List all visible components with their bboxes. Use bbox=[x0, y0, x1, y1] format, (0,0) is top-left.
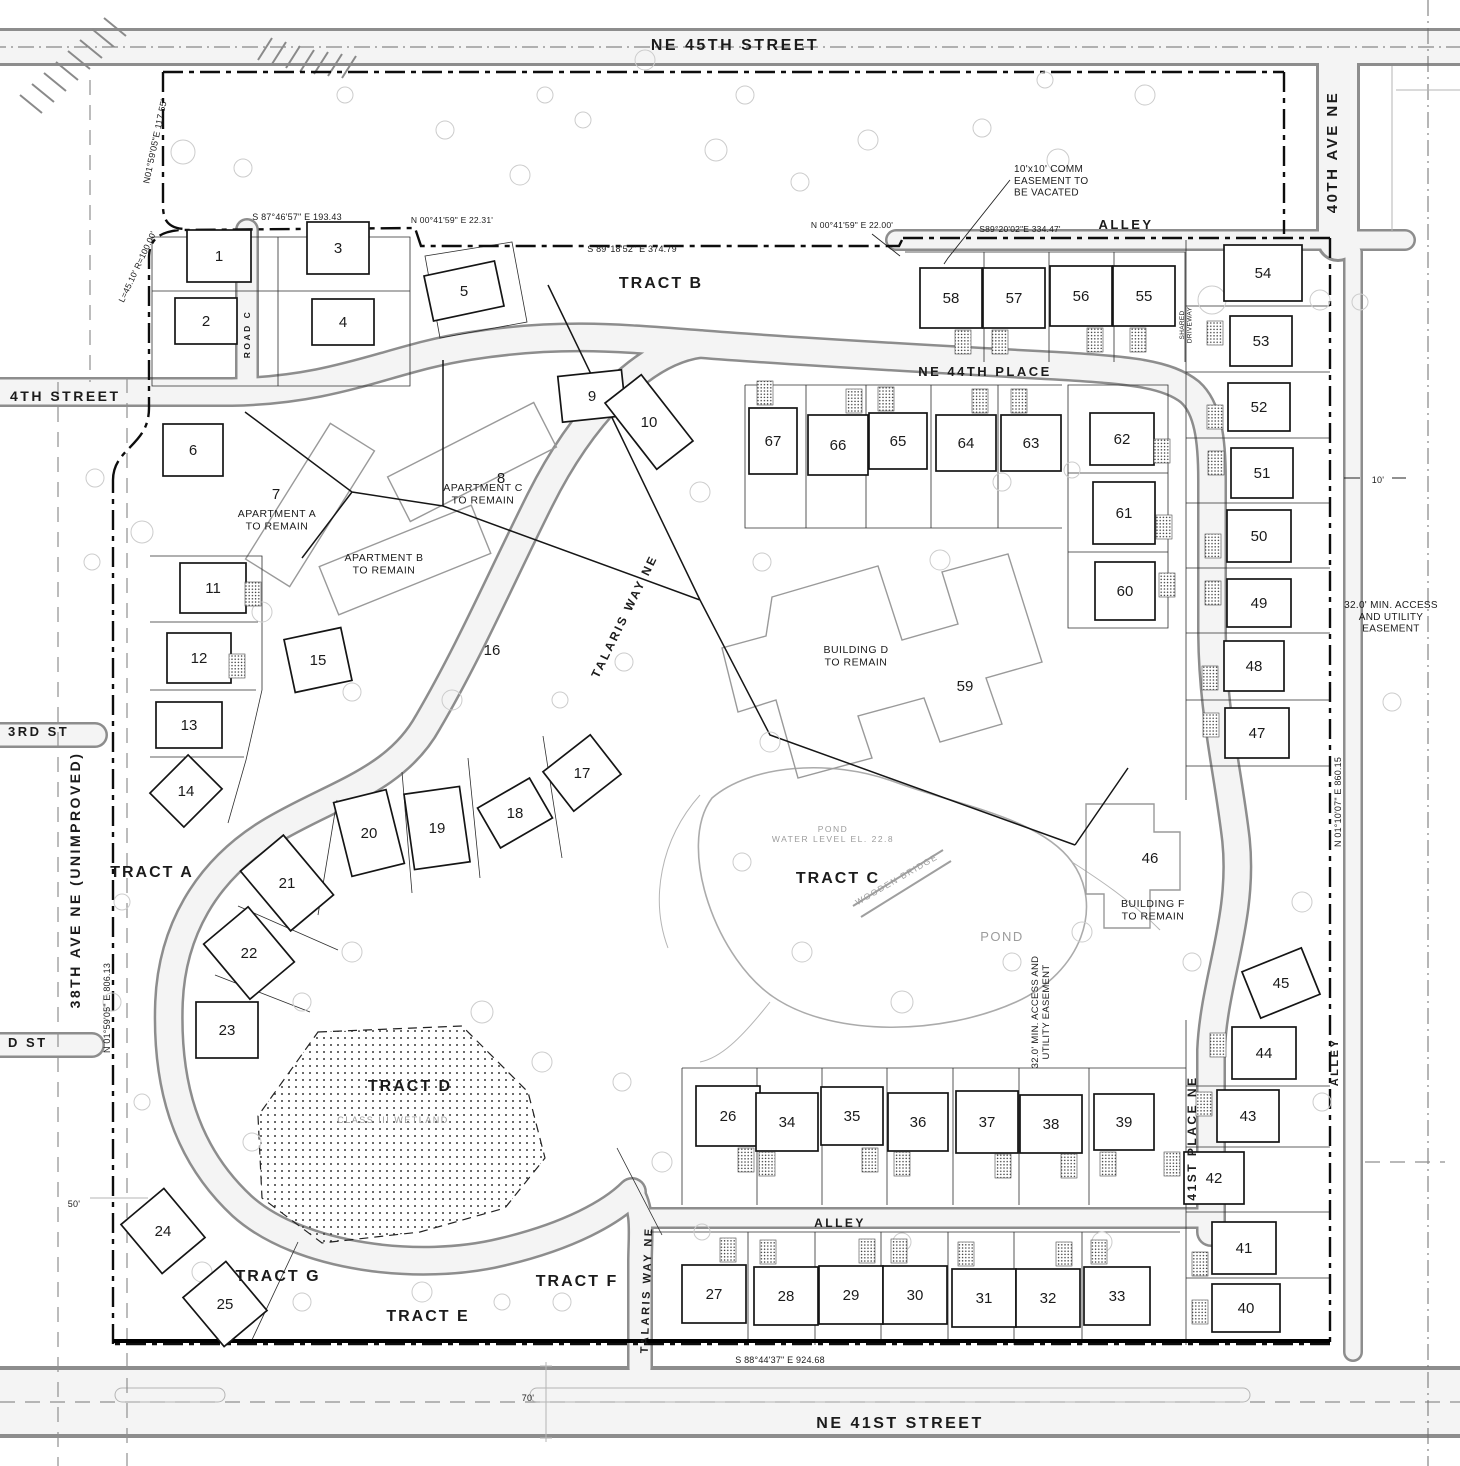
lot-number: 50 bbox=[1251, 528, 1268, 545]
lot-number: 22 bbox=[241, 945, 258, 962]
driveway-pad bbox=[1210, 1033, 1226, 1057]
lot-number: 56 bbox=[1073, 288, 1090, 305]
tract-label: TRACT G bbox=[235, 1268, 320, 1285]
bearing-annotation: N 01°59'05" E 806.13 bbox=[102, 963, 112, 1053]
site-plan-drawing: 1234567891011121314151617181920212223242… bbox=[0, 0, 1460, 1466]
driveway-pad bbox=[859, 1239, 875, 1263]
lot-number: 39 bbox=[1116, 1114, 1133, 1131]
lot-number: 18 bbox=[507, 805, 524, 822]
driveway-pad bbox=[1091, 1240, 1107, 1264]
lot-number: 55 bbox=[1136, 288, 1153, 305]
bearing-annotation: N 01°10'07" E 860.15 bbox=[1333, 757, 1343, 847]
driveway-pad bbox=[1208, 451, 1224, 475]
dimension-label: 50' bbox=[68, 1199, 81, 1209]
lot-number: 53 bbox=[1253, 333, 1270, 350]
street-label: 40TH AVE NE bbox=[1324, 91, 1341, 214]
lot-number: 30 bbox=[907, 1287, 924, 1304]
lot-number: 37 bbox=[979, 1114, 996, 1131]
lot-number: 16 bbox=[484, 642, 501, 659]
building-label: BUILDING FTO REMAIN bbox=[1121, 898, 1185, 922]
driveway-pad bbox=[955, 330, 971, 354]
lot-23: 23 bbox=[196, 1002, 258, 1058]
tract-label: TRACT B bbox=[619, 275, 703, 292]
annotation-note: 10'x10' COMMEASEMENT TOBE VACATED bbox=[1014, 164, 1088, 199]
lot-3: 3 bbox=[307, 222, 369, 274]
driveway-pad bbox=[846, 389, 862, 413]
lot-number: 28 bbox=[778, 1288, 795, 1305]
lot-number: 7 bbox=[272, 486, 280, 503]
driveway-pad bbox=[894, 1152, 910, 1176]
street-label: ALLEY bbox=[1329, 1038, 1341, 1087]
lot-number: 21 bbox=[279, 875, 296, 892]
bearing-annotation: N 00°41'59" E 22.00' bbox=[811, 220, 893, 230]
tract-label: TRACT C bbox=[796, 870, 880, 887]
driveway-pad bbox=[1130, 328, 1146, 352]
lot-number: 42 bbox=[1206, 1170, 1223, 1187]
lot-number: 61 bbox=[1116, 505, 1133, 522]
driveway-pad bbox=[1011, 389, 1027, 413]
tract-label: TRACT F bbox=[536, 1273, 618, 1290]
driveway-pad bbox=[1061, 1154, 1077, 1178]
bearing-annotation: S89°20'02"E 334.47' bbox=[979, 224, 1061, 234]
street-label: 41ST PLACE NE bbox=[1185, 1075, 1199, 1200]
lot-number: 63 bbox=[1023, 435, 1040, 452]
driveway-pad bbox=[760, 1240, 776, 1264]
lot-number: 57 bbox=[1006, 290, 1023, 307]
lot-number: 43 bbox=[1240, 1108, 1257, 1125]
lot-number: 32 bbox=[1040, 1290, 1057, 1307]
bearing-annotation: N 00°41'59" E 22.31' bbox=[411, 215, 493, 225]
lot-number: 13 bbox=[181, 717, 198, 734]
bearing-annotation: S 87°46'57" E 193.43 bbox=[252, 212, 342, 222]
lot-number: 54 bbox=[1255, 265, 1272, 282]
street-label: 38TH AVE NE (UNIMPROVED) bbox=[67, 752, 83, 1009]
driveway-pad bbox=[1205, 581, 1221, 605]
lot-number: 19 bbox=[429, 820, 446, 837]
building-label: BUILDING DTO REMAIN bbox=[823, 644, 888, 668]
lot-number: 38 bbox=[1043, 1116, 1060, 1133]
street-label: ALLEY bbox=[1098, 217, 1153, 232]
driveway-pad bbox=[1156, 515, 1172, 539]
lot-number: 6 bbox=[189, 442, 197, 459]
driveway-pad bbox=[1154, 439, 1170, 463]
driveway-pad bbox=[995, 1154, 1011, 1178]
street-label: NE 44TH PLACE bbox=[918, 364, 1052, 379]
driveway-pad bbox=[862, 1148, 878, 1172]
driveway-pad bbox=[1192, 1252, 1208, 1276]
lot-1: 1 bbox=[187, 230, 251, 282]
building-label: APARTMENT BTO REMAIN bbox=[344, 552, 423, 576]
lot-number: 41 bbox=[1236, 1240, 1253, 1257]
lot-number: 14 bbox=[178, 783, 195, 800]
lot-number: 12 bbox=[191, 650, 208, 667]
water-label: POND bbox=[980, 929, 1024, 944]
driveway-pad bbox=[757, 381, 773, 405]
lot-number: 3 bbox=[334, 240, 342, 257]
lot-number: 9 bbox=[588, 388, 596, 405]
lot-number: 45 bbox=[1273, 975, 1290, 992]
driveway-pad bbox=[229, 654, 245, 678]
dimension-label: 10' bbox=[1372, 475, 1385, 485]
lot-number: 64 bbox=[958, 435, 975, 452]
bearing-annotation: S 89°18'52" E 374.79 bbox=[587, 244, 677, 254]
driveway-pad bbox=[1100, 1152, 1116, 1176]
lot-number: 62 bbox=[1114, 431, 1131, 448]
lot-number: 5 bbox=[460, 283, 468, 300]
lot-number: 31 bbox=[976, 1290, 993, 1307]
lot-2: 2 bbox=[175, 298, 237, 344]
lot-number: 47 bbox=[1249, 725, 1266, 742]
driveway-pad bbox=[1056, 1242, 1072, 1266]
driveway-pad bbox=[878, 387, 894, 411]
lot-number: 40 bbox=[1238, 1300, 1255, 1317]
lot-number: 65 bbox=[890, 433, 907, 450]
driveway-pad bbox=[1202, 666, 1218, 690]
street-label: 3RD ST bbox=[8, 724, 69, 739]
tract-label: TRACT A bbox=[110, 864, 194, 881]
lot-15: 15 bbox=[284, 628, 352, 693]
driveway-pad bbox=[1192, 1300, 1208, 1324]
lot-16: 16 bbox=[484, 642, 501, 659]
lot-number: 17 bbox=[574, 765, 591, 782]
lot-number: 4 bbox=[339, 314, 347, 331]
lot-number: 20 bbox=[361, 825, 378, 842]
lot-number: 35 bbox=[844, 1108, 861, 1125]
building-label: APARTMENT CTO REMAIN bbox=[443, 482, 523, 506]
lot-46: 46 bbox=[1142, 850, 1159, 867]
dimension-label: 70' bbox=[522, 1393, 535, 1403]
lot-number: 44 bbox=[1256, 1045, 1273, 1062]
tract-label: TRACT D bbox=[368, 1078, 452, 1095]
lot-number: 49 bbox=[1251, 595, 1268, 612]
lot-number: 25 bbox=[217, 1296, 234, 1313]
lot-13: 13 bbox=[156, 702, 222, 748]
driveway-pad bbox=[972, 389, 988, 413]
lot-number: 46 bbox=[1142, 850, 1159, 867]
lot-number: 2 bbox=[202, 313, 210, 330]
lot-number: 33 bbox=[1109, 1288, 1126, 1305]
bearing-annotation: S 88°44'37" E 924.68 bbox=[735, 1355, 825, 1365]
street-label: 4TH STREET bbox=[10, 388, 121, 404]
lot-number: 29 bbox=[843, 1287, 860, 1304]
driveway-pad bbox=[1207, 405, 1223, 429]
annotation-note: 32.0' MIN. ACCESS ANDUTILITY EASEMENT bbox=[1030, 956, 1052, 1069]
lot-number: 24 bbox=[155, 1223, 172, 1240]
lot-54: 54 bbox=[1224, 245, 1302, 301]
lot-59: 59 bbox=[957, 678, 974, 695]
lot-number: 36 bbox=[910, 1114, 927, 1131]
lot-number: 26 bbox=[720, 1108, 737, 1125]
lot-number: 66 bbox=[830, 437, 847, 454]
lot-number: 51 bbox=[1254, 465, 1271, 482]
driveway-pad bbox=[1164, 1152, 1180, 1176]
lot-7: 7 bbox=[272, 486, 280, 503]
lot-19: 19 bbox=[404, 786, 470, 869]
lot-number: 58 bbox=[943, 290, 960, 307]
driveway-pad bbox=[958, 1242, 974, 1266]
street-label: NE 45TH STREET bbox=[651, 37, 819, 54]
street-label: ROAD C bbox=[242, 310, 252, 359]
lot-number: 23 bbox=[219, 1022, 236, 1039]
tract-label: TRACT E bbox=[386, 1308, 469, 1325]
lot-6: 6 bbox=[163, 424, 223, 476]
building-label: APARTMENT ATO REMAIN bbox=[238, 508, 316, 532]
driveway-pad bbox=[720, 1238, 736, 1262]
driveway-pad bbox=[1087, 328, 1103, 352]
driveway-pad bbox=[245, 582, 261, 606]
driveway-pad bbox=[1207, 321, 1223, 345]
annotation-note: SHAREDDRIVEWAY bbox=[1179, 306, 1194, 343]
street-label: NE 41ST STREET bbox=[816, 1415, 983, 1432]
lot-number: 10 bbox=[641, 414, 658, 431]
street-label: D ST bbox=[8, 1035, 48, 1050]
driveway-pad bbox=[1205, 534, 1221, 558]
lot-number: 15 bbox=[310, 652, 327, 669]
lot-number: 11 bbox=[205, 580, 221, 597]
driveway-pad bbox=[1203, 713, 1219, 737]
lot-number: 60 bbox=[1117, 583, 1134, 600]
lot-number: 34 bbox=[779, 1114, 796, 1131]
lot-4: 4 bbox=[312, 299, 374, 345]
lot-number: 67 bbox=[765, 433, 782, 450]
driveway-pad bbox=[891, 1239, 907, 1263]
street-label: ALLEY bbox=[814, 1216, 866, 1230]
lot-number: 27 bbox=[706, 1286, 723, 1303]
lot-number: 48 bbox=[1246, 658, 1263, 675]
lot-number: 1 bbox=[215, 248, 223, 265]
driveway-pad bbox=[1159, 573, 1175, 597]
lot-number: 59 bbox=[957, 678, 974, 695]
driveway-pad bbox=[992, 330, 1008, 354]
driveway-pad bbox=[738, 1148, 754, 1172]
driveway-pad bbox=[759, 1152, 775, 1176]
water-label: CLASS III WETLAND bbox=[337, 1115, 449, 1125]
lot-number: 52 bbox=[1251, 399, 1268, 416]
